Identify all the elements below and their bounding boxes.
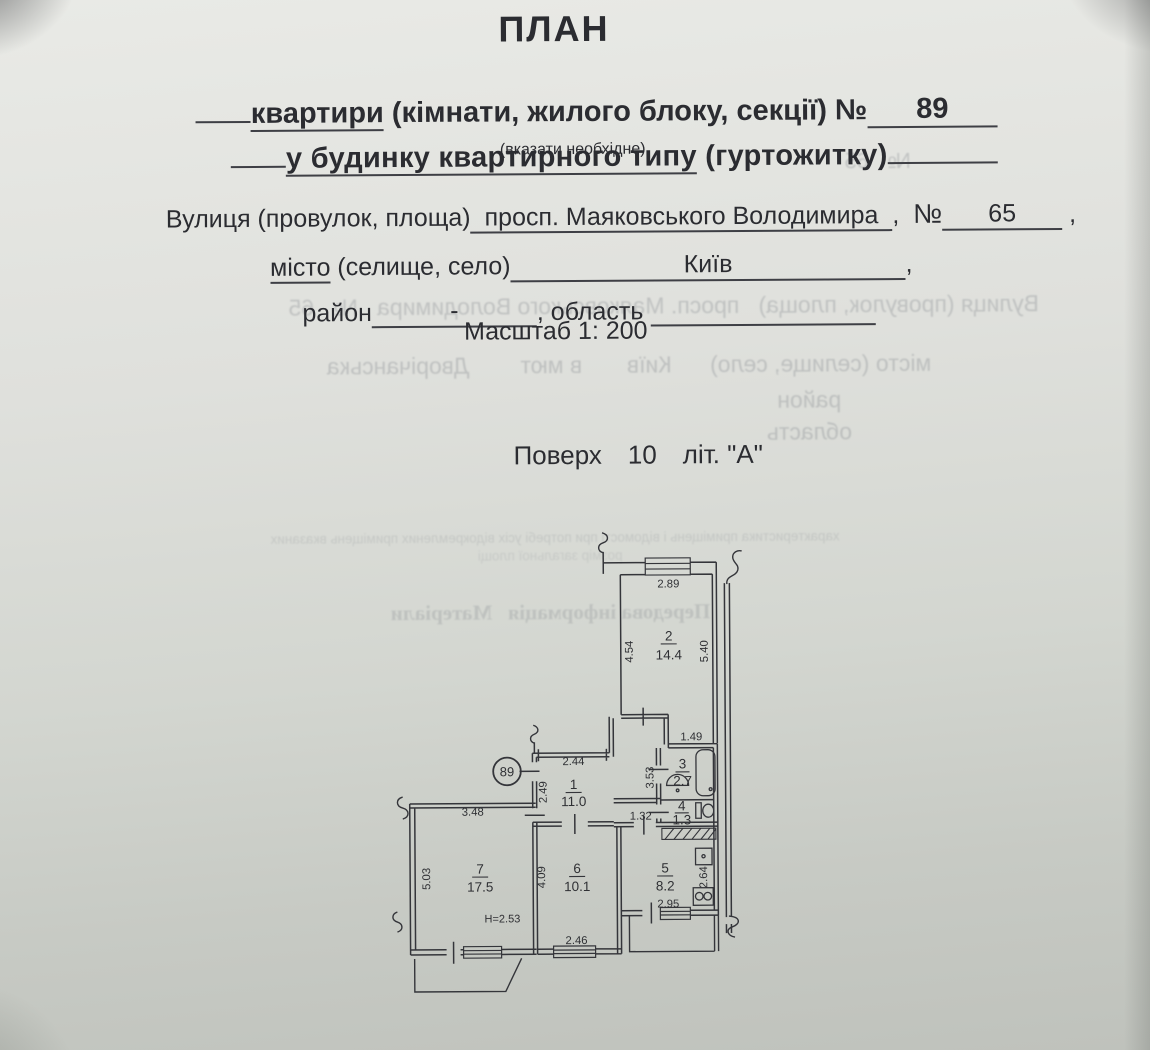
room-7-area: 17.5 bbox=[467, 880, 493, 895]
dim-corridor: 1.32 bbox=[630, 811, 652, 823]
dim-room2-right: 5.40 bbox=[699, 640, 711, 662]
floor-line: Поверх10літ. "А" bbox=[59, 405, 1150, 505]
dim-bath-left: 3.53 bbox=[644, 767, 656, 789]
stove-burner bbox=[704, 892, 712, 900]
ceiling-height-note: Н=2.53 bbox=[484, 913, 520, 925]
break-mark bbox=[599, 533, 608, 553]
entry-badge: 89 bbox=[493, 758, 521, 786]
blank-underline bbox=[231, 137, 286, 168]
floor-letter: літ. "А" bbox=[683, 439, 763, 469]
dim-room2-top: 2.89 bbox=[657, 578, 679, 590]
scale-line: Масштаб 1: 200 bbox=[0, 314, 1113, 350]
room-5-number: 5 bbox=[661, 860, 669, 875]
vent-shaft bbox=[662, 828, 716, 839]
floor-value: 10 bbox=[628, 439, 657, 469]
toilet-bowl bbox=[703, 804, 714, 817]
room-6-area: 10.1 bbox=[564, 879, 590, 894]
break-mark bbox=[728, 916, 739, 937]
scan-content: № 65 Вулиця (провулок, площа) просп. Мая… bbox=[0, 0, 1150, 1050]
scan-edge-shadow bbox=[1124, 0, 1150, 1050]
dim-hall-top: 2.44 bbox=[562, 756, 584, 768]
dim-room7-top: 3.48 bbox=[462, 807, 484, 819]
dim-kitchen-bottom: 2.95 bbox=[657, 898, 679, 910]
dim-room2-left: 4.54 bbox=[624, 641, 636, 663]
room-3-area: 2.7 bbox=[673, 773, 692, 788]
loggia-kitchen bbox=[629, 915, 718, 952]
stove-burner bbox=[695, 892, 703, 900]
dim-room6-left: 4.09 bbox=[536, 866, 548, 888]
document-title: ПЛАН bbox=[0, 5, 1111, 54]
kitchen-sink-drain bbox=[702, 855, 705, 858]
comma: , bbox=[1062, 200, 1076, 228]
floor-label: Поверх bbox=[513, 440, 601, 471]
dim-room6-bottom: 2.46 bbox=[566, 935, 588, 947]
room-2-area: 14.4 bbox=[656, 647, 683, 662]
break-mark bbox=[727, 551, 742, 584]
window-room7 bbox=[464, 946, 502, 958]
break-mark bbox=[397, 797, 408, 819]
room-3-number: 3 bbox=[679, 756, 687, 771]
balcony-room7 bbox=[415, 958, 522, 992]
room-1-area: 11.0 bbox=[561, 794, 586, 809]
break-mark bbox=[530, 725, 537, 743]
room-6-number: 6 bbox=[573, 861, 581, 876]
form-note: (вказати необхідне) bbox=[298, 139, 848, 160]
scanned-page: № 65 Вулиця (провулок, площа) просп. Мая… bbox=[0, 0, 1150, 1050]
room-4-area: 1.3 bbox=[672, 812, 691, 827]
window-room6 bbox=[554, 946, 596, 958]
bathtub-drain bbox=[709, 788, 712, 791]
dim-kitchen-right: 2.64 bbox=[698, 866, 710, 888]
break-mark bbox=[393, 912, 402, 932]
comma: , bbox=[905, 250, 912, 278]
floor-plan: 89 2 14.4 1 11.0 3 2.7 4 1.3 5 8.2 6 10.… bbox=[383, 519, 776, 1011]
kitchen-sink bbox=[695, 848, 712, 865]
washbasin-drain bbox=[676, 789, 679, 792]
wall bbox=[519, 716, 661, 954]
toilet-tank bbox=[696, 803, 702, 819]
entry-badge-number: 89 bbox=[500, 764, 515, 779]
room-4-number: 4 bbox=[678, 798, 686, 813]
room-5-area: 8.2 bbox=[656, 878, 675, 893]
room-1-number: 1 bbox=[570, 777, 578, 792]
window-room2 bbox=[645, 558, 690, 575]
room-7-number: 7 bbox=[476, 862, 484, 877]
dim-bath-top: 1.49 bbox=[680, 731, 702, 743]
dim-room7-left: 5.03 bbox=[421, 868, 433, 890]
wall bbox=[724, 583, 731, 933]
street-number-sign: № bbox=[913, 199, 942, 229]
blank-underline bbox=[888, 132, 998, 164]
street-number-field: 65 bbox=[942, 199, 1062, 230]
room-2-number: 2 bbox=[665, 628, 673, 643]
dim-hall-left: 2.49 bbox=[538, 781, 550, 803]
